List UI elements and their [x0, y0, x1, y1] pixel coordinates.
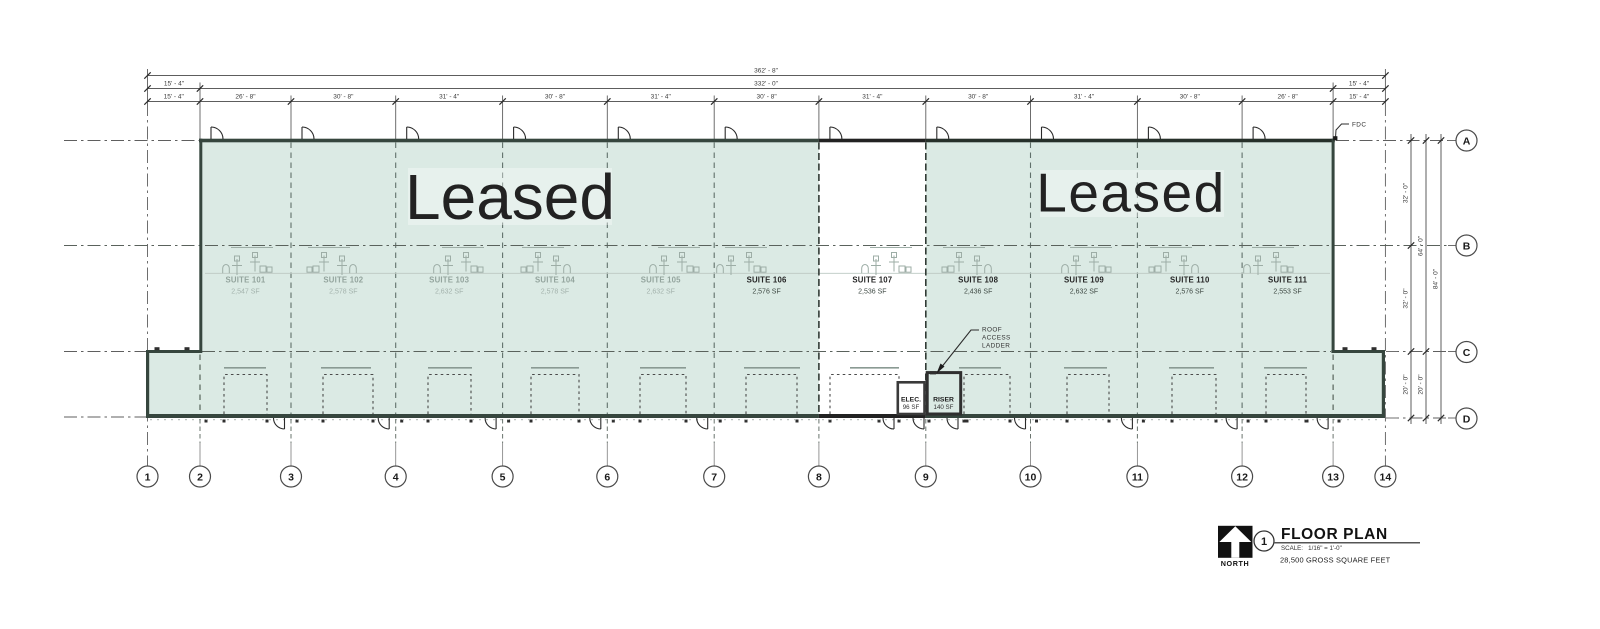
svg-text:FLOOR PLAN: FLOOR PLAN: [1281, 526, 1388, 543]
svg-text:2,632 SF: 2,632 SF: [435, 289, 463, 296]
svg-text:2,632 SF: 2,632 SF: [647, 289, 675, 296]
svg-text:Leased: Leased: [405, 161, 615, 233]
svg-text:B: B: [1463, 240, 1471, 252]
svg-text:FDC: FDC: [1352, 122, 1366, 129]
svg-text:2,578 SF: 2,578 SF: [541, 289, 569, 296]
svg-text:SUITE 109: SUITE 109: [1064, 276, 1104, 285]
svg-text:32' - 0": 32' - 0": [1403, 182, 1410, 203]
svg-text:D: D: [1463, 413, 1471, 425]
svg-text:9: 9: [923, 471, 929, 483]
svg-text:5: 5: [500, 471, 506, 483]
svg-text:2,576 SF: 2,576 SF: [1176, 289, 1204, 296]
svg-text:SCALE: 1/16" = 1'-0": SCALE: 1/16" = 1'-0": [1281, 545, 1342, 552]
svg-text:2,578 SF: 2,578 SF: [329, 289, 357, 296]
svg-text:26' - 8": 26' - 8": [235, 94, 256, 101]
svg-text:SUITE 106: SUITE 106: [747, 276, 787, 285]
svg-text:32' - 0": 32' - 0": [1403, 288, 1410, 309]
svg-text:C: C: [1463, 347, 1471, 359]
svg-text:SUITE 104: SUITE 104: [535, 276, 575, 285]
svg-text:1: 1: [145, 471, 151, 483]
svg-text:2,632 SF: 2,632 SF: [1070, 289, 1098, 296]
svg-text:2,436 SF: 2,436 SF: [964, 289, 992, 296]
svg-text:SUITE 110: SUITE 110: [1170, 276, 1210, 285]
svg-text:ROOF: ROOF: [982, 327, 1002, 334]
svg-text:4: 4: [393, 471, 399, 483]
svg-text:31' - 4": 31' - 4": [651, 94, 672, 101]
svg-text:96 SF: 96 SF: [903, 404, 920, 411]
svg-text:Leased: Leased: [1036, 162, 1225, 224]
svg-text:31' - 4": 31' - 4": [439, 94, 460, 101]
svg-text:ACCESS: ACCESS: [982, 335, 1011, 342]
svg-text:8: 8: [816, 471, 822, 483]
svg-text:SUITE 103: SUITE 103: [429, 276, 469, 285]
svg-text:30' - 8": 30' - 8": [756, 94, 777, 101]
svg-text:15' - 4": 15' - 4": [164, 94, 185, 101]
svg-text:12: 12: [1236, 471, 1248, 483]
svg-text:13: 13: [1327, 471, 1339, 483]
svg-text:31' - 4": 31' - 4": [862, 94, 883, 101]
svg-text:SUITE 111: SUITE 111: [1268, 276, 1308, 285]
svg-text:15' - 4": 15' - 4": [1349, 94, 1370, 101]
svg-text:SUITE 108: SUITE 108: [958, 276, 998, 285]
svg-text:15' - 4": 15' - 4": [164, 81, 185, 88]
svg-text:30' - 8": 30' - 8": [968, 94, 989, 101]
svg-text:20' - 0": 20' - 0": [1403, 374, 1410, 395]
svg-text:LADDER: LADDER: [982, 343, 1010, 350]
svg-text:2,576 SF: 2,576 SF: [752, 289, 780, 296]
svg-text:SUITE 105: SUITE 105: [641, 276, 681, 285]
svg-text:362' - 8": 362' - 8": [754, 68, 778, 75]
svg-text:NORTH: NORTH: [1221, 559, 1250, 568]
svg-text:26' - 8": 26' - 8": [1278, 94, 1299, 101]
svg-text:6: 6: [604, 471, 610, 483]
svg-text:SUITE 107: SUITE 107: [852, 276, 892, 285]
svg-text:2,553 SF: 2,553 SF: [1273, 289, 1301, 296]
svg-text:64' - 0": 64' - 0": [1418, 235, 1425, 256]
svg-text:2,547 SF: 2,547 SF: [231, 289, 259, 296]
svg-text:1: 1: [1261, 536, 1267, 548]
svg-text:2: 2: [197, 471, 203, 483]
svg-text:84' - 0": 84' - 0": [1433, 268, 1440, 289]
svg-text:30' - 8": 30' - 8": [545, 94, 566, 101]
svg-text:SUITE 101: SUITE 101: [226, 276, 266, 285]
svg-text:15' - 4": 15' - 4": [1349, 81, 1370, 88]
svg-text:31' - 4": 31' - 4": [1074, 94, 1095, 101]
svg-text:7: 7: [711, 471, 717, 483]
svg-text:RISER: RISER: [933, 397, 954, 404]
svg-text:10: 10: [1025, 471, 1037, 483]
svg-text:ELEC.: ELEC.: [901, 397, 921, 404]
svg-text:14: 14: [1380, 471, 1392, 483]
svg-text:28,500 GROSS SQUARE FEET: 28,500 GROSS SQUARE FEET: [1280, 556, 1391, 565]
svg-text:30' - 8": 30' - 8": [333, 94, 354, 101]
svg-text:140 SF: 140 SF: [934, 404, 954, 411]
svg-text:2,536 SF: 2,536 SF: [858, 289, 886, 296]
svg-text:332' - 0": 332' - 0": [754, 81, 778, 88]
svg-text:SUITE 102: SUITE 102: [323, 276, 363, 285]
svg-text:11: 11: [1132, 471, 1143, 483]
svg-text:3: 3: [288, 471, 294, 483]
svg-text:A: A: [1463, 135, 1471, 147]
svg-text:20' - 0": 20' - 0": [1418, 374, 1425, 395]
svg-text:30' - 8": 30' - 8": [1180, 94, 1201, 101]
